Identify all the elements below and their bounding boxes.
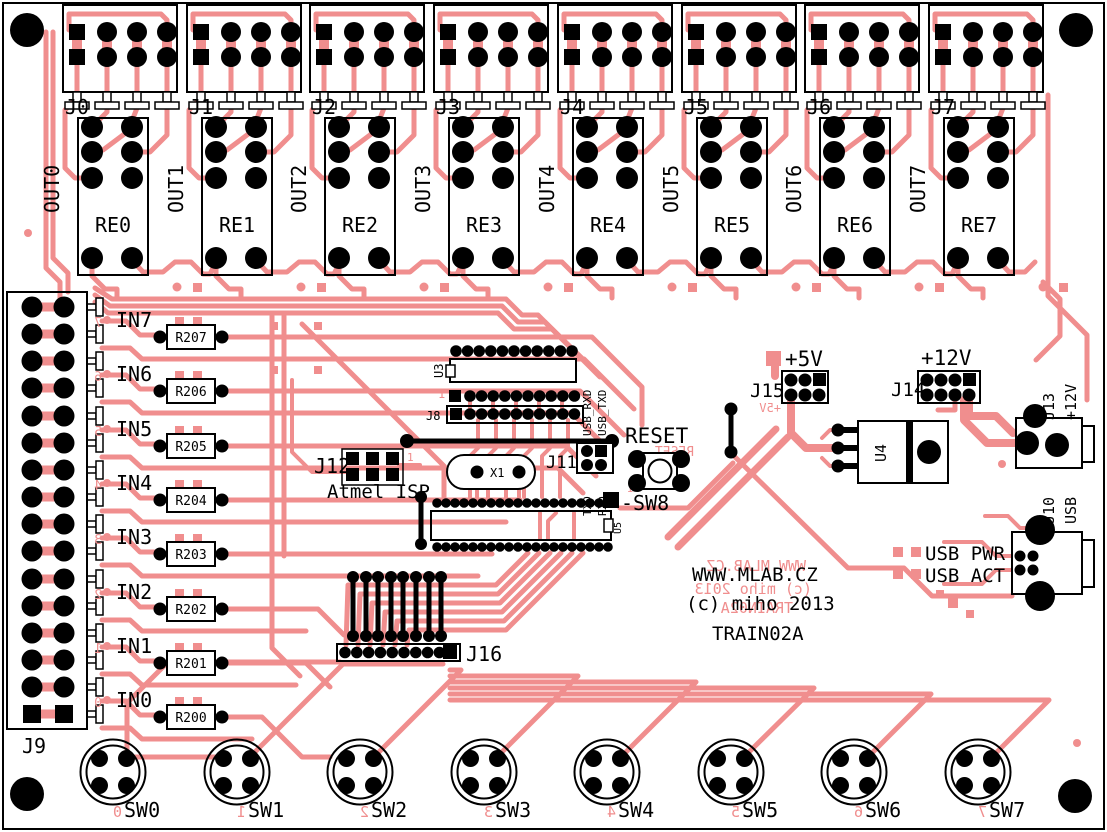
relay-pad	[987, 116, 1009, 138]
relay-label: RE0	[95, 213, 131, 237]
pad	[464, 390, 476, 402]
usb-pwr-led-pad	[893, 547, 903, 557]
plus12v-label: +12V	[921, 346, 972, 370]
pad	[1023, 22, 1043, 42]
copper-digit: 4	[94, 479, 102, 494]
pad	[498, 22, 518, 42]
connector-label: J6	[807, 95, 831, 119]
relay-pad	[121, 247, 143, 269]
pad	[899, 47, 919, 67]
copper-pad	[314, 322, 322, 330]
jumper-end	[385, 571, 397, 583]
relay-pad	[947, 247, 969, 269]
switch-pad	[956, 777, 973, 794]
pad	[477, 498, 487, 508]
pad	[281, 22, 301, 42]
switch-pad	[612, 777, 629, 794]
mounting-hole-top-left	[10, 13, 44, 47]
pad	[495, 498, 505, 508]
relay-label: RE3	[466, 213, 502, 237]
resistor-label: R207	[175, 331, 206, 346]
relay-pad	[576, 167, 598, 189]
pad	[839, 47, 859, 67]
pin-stub	[96, 407, 103, 425]
usb-pwr-label: USB PWR	[925, 543, 1006, 565]
pad	[869, 47, 889, 67]
via	[1039, 283, 1048, 292]
pin1-copper-mark: 1	[438, 387, 445, 401]
pin-stub	[496, 102, 520, 109]
via	[103, 533, 111, 541]
usb-act-label: USB ACT	[925, 565, 1005, 587]
relay-pad	[823, 247, 845, 269]
input-signal-label: IN3	[116, 525, 152, 549]
relay-pad	[368, 167, 390, 189]
jumper-end	[410, 630, 422, 642]
usb-pwr-led-pad	[911, 547, 921, 557]
pad	[54, 569, 75, 590]
mounting-hole-bottom-right	[1058, 779, 1092, 813]
resistor-label: R202	[175, 603, 206, 618]
copper-digit: 2	[94, 588, 102, 603]
switch-pad	[709, 750, 726, 767]
resistor-pad	[216, 385, 229, 398]
switch-pad	[859, 777, 876, 794]
usb-rxd-label: USB_RXD	[581, 390, 594, 436]
mounting-hole-bottom-left	[10, 777, 44, 811]
txd-label: TXD	[581, 496, 594, 516]
pad	[511, 390, 523, 402]
relay-pad	[947, 167, 969, 189]
copper-digit: 6	[854, 803, 863, 821]
pad	[592, 22, 612, 42]
via	[103, 425, 111, 433]
resistor-label: R201	[175, 657, 206, 672]
copper-pad	[270, 366, 278, 374]
switch-pad	[338, 777, 355, 794]
pad	[54, 487, 75, 508]
pad	[585, 542, 595, 552]
pin-stub	[991, 102, 1015, 109]
copper-pad	[314, 366, 322, 374]
via	[668, 283, 677, 292]
switch-pad	[585, 750, 602, 767]
jumper-end	[360, 571, 372, 583]
pad	[545, 408, 557, 420]
usb-txd-label: USB_TXD	[596, 390, 609, 436]
pad	[22, 677, 43, 698]
input-signal-label: IN2	[116, 580, 152, 604]
connector-label: J1	[189, 95, 213, 119]
pin-stub	[96, 624, 103, 642]
relay-pad	[492, 141, 514, 163]
relay-pad	[121, 167, 143, 189]
copper-digit: 7	[94, 316, 102, 331]
pad	[127, 47, 147, 67]
relay-pad	[987, 141, 1009, 163]
resistor-label: R200	[175, 711, 206, 726]
pin1-pad	[935, 24, 951, 40]
copper-pad	[564, 283, 573, 292]
pad	[404, 47, 424, 67]
pad	[522, 498, 532, 508]
relay-pad	[863, 141, 885, 163]
pin-stub	[658, 92, 666, 102]
relay-pad	[616, 247, 638, 269]
pad	[22, 650, 43, 671]
pad	[477, 542, 487, 552]
copper-pad	[948, 598, 958, 608]
relay-label: RE6	[837, 213, 873, 237]
pad	[549, 542, 559, 552]
pin-stub	[875, 92, 883, 102]
pad	[193, 49, 209, 65]
relay-label: RE5	[714, 213, 750, 237]
pin-stub	[87, 657, 96, 663]
pad	[511, 408, 523, 420]
switch-label: SW7	[989, 798, 1025, 822]
connector-label: J4	[560, 95, 584, 119]
pin-stub	[744, 102, 768, 109]
copper-pad	[935, 283, 944, 292]
relay-pad	[823, 141, 845, 163]
pad	[22, 569, 43, 590]
pad	[558, 498, 568, 508]
resistor-label: R203	[175, 548, 206, 563]
pad	[811, 49, 827, 65]
copper-pad	[270, 322, 278, 330]
pad	[22, 297, 43, 318]
jumper-end	[347, 630, 359, 642]
pad	[746, 47, 766, 67]
out-signal-label: OUT1	[164, 165, 188, 213]
crystal-x1-label: X1	[490, 466, 504, 480]
pin-stub	[534, 92, 542, 102]
pad	[459, 498, 469, 508]
pin-stub	[1029, 92, 1037, 102]
copper-digit: 4	[607, 803, 616, 821]
switch-label: SW1	[248, 798, 284, 822]
relay-pad	[492, 167, 514, 189]
pad	[97, 47, 117, 67]
via	[24, 229, 32, 237]
pin-stub	[620, 102, 644, 109]
jumper-end	[415, 538, 427, 550]
pin-stub	[96, 515, 103, 533]
pad	[652, 22, 672, 42]
usb-j10-label: J10	[1040, 497, 1058, 524]
relay-pad	[245, 247, 267, 269]
isp-caption: Atmel ISP	[327, 481, 430, 503]
switch-pad	[462, 750, 479, 767]
pin-stub	[249, 102, 273, 109]
relay-pad	[205, 141, 227, 163]
relay-pad	[823, 167, 845, 189]
connector-label: J2	[312, 95, 336, 119]
power-jack-j13-label: J13	[1040, 393, 1058, 420]
jumper-end	[435, 630, 447, 642]
switch-pad	[983, 777, 1000, 794]
relay-pad	[205, 116, 227, 138]
pad	[499, 408, 511, 420]
header-j8-label: J8	[426, 409, 440, 423]
copper-digit: 0	[113, 803, 122, 821]
pad	[487, 390, 499, 402]
switch-pad	[983, 750, 1000, 767]
switch-pad	[736, 750, 753, 767]
relay-pad	[700, 247, 722, 269]
pad	[157, 22, 177, 42]
pin-stub	[87, 548, 96, 554]
pad	[531, 498, 541, 508]
switch-pad	[338, 750, 355, 767]
relay-label: RE7	[961, 213, 997, 237]
pad	[54, 596, 75, 617]
pad	[594, 542, 604, 552]
pin-stub	[598, 92, 606, 102]
switch-pad	[489, 777, 506, 794]
jumper-end	[372, 571, 384, 583]
relay-pad	[700, 167, 722, 189]
switch-pad	[462, 777, 479, 794]
switch-label: SW0	[124, 798, 160, 822]
pad	[450, 498, 460, 508]
pad	[716, 47, 736, 67]
mcu-u5-label: U5	[613, 522, 624, 534]
pad	[534, 390, 546, 402]
copper-digit: 1	[237, 803, 246, 821]
board-copyright: (c) miho 2013	[686, 593, 835, 615]
relay-pad	[616, 141, 638, 163]
pad	[869, 22, 889, 42]
pad	[54, 623, 75, 644]
pad	[558, 542, 568, 552]
pin-stub	[961, 102, 985, 109]
out-signal-label: OUT3	[411, 165, 435, 213]
pad	[776, 22, 796, 42]
via	[173, 283, 182, 292]
pin-stub	[87, 413, 96, 419]
pad	[386, 647, 398, 659]
plus5v-label: +5V	[785, 347, 823, 371]
via	[420, 283, 429, 292]
pad	[54, 297, 75, 318]
switch-label: SW6	[865, 798, 901, 822]
pin-stub	[163, 92, 171, 102]
pad	[531, 345, 543, 357]
pin-stub	[279, 102, 303, 109]
pad	[528, 22, 548, 42]
jumper-end	[410, 571, 422, 583]
pad	[540, 542, 550, 552]
pad	[935, 49, 951, 65]
pad	[534, 408, 546, 420]
pad	[22, 324, 43, 345]
pad	[22, 406, 43, 427]
copper-digit: 2	[360, 803, 369, 821]
pin-stub	[96, 352, 103, 370]
switch-pad	[91, 750, 108, 767]
pad	[410, 647, 422, 659]
pin-stub	[380, 92, 388, 102]
pin1-pad	[69, 24, 85, 40]
relay-pad	[823, 116, 845, 138]
relay-pad	[740, 141, 762, 163]
connector-label: J7	[931, 95, 955, 119]
relay-pad	[81, 247, 103, 269]
resistor-label: R205	[175, 440, 206, 455]
pin-stub	[714, 102, 738, 109]
relay-pad	[328, 167, 350, 189]
pad	[993, 47, 1013, 67]
relay-pad	[987, 167, 1009, 189]
pad	[486, 498, 496, 508]
pin-stub	[650, 102, 674, 109]
pad	[569, 408, 581, 420]
pin1-pad	[450, 408, 462, 420]
pad	[22, 460, 43, 481]
pad	[716, 22, 736, 42]
switch-pad	[612, 750, 629, 767]
relay-pad	[245, 167, 267, 189]
relay-pad	[368, 247, 390, 269]
pad	[422, 647, 434, 659]
switch-pad	[859, 750, 876, 767]
jumper-end	[435, 571, 447, 583]
pcb-canvas: 1 1 1 RESET +5V WWW.MLAB.CZ (c) miho 201…	[0, 0, 1107, 832]
pad	[688, 49, 704, 65]
relay-pad	[81, 141, 103, 163]
plus5v-copper-pad	[766, 351, 781, 366]
pad	[564, 49, 580, 65]
resistor-pad	[154, 548, 167, 561]
pin1-pad	[564, 24, 580, 40]
pad	[557, 390, 569, 402]
pin-stub	[969, 92, 977, 102]
input-signal-label: IN0	[116, 688, 152, 712]
pad	[22, 596, 43, 617]
pad	[504, 542, 514, 552]
pad	[450, 345, 462, 357]
switch-label: SW4	[618, 798, 654, 822]
pin-stub	[96, 678, 103, 696]
relay-pad	[987, 247, 1009, 269]
pin-stub	[96, 461, 103, 479]
pad	[622, 22, 642, 42]
pad	[899, 22, 919, 42]
out-signal-label: OUT7	[906, 165, 930, 213]
pad	[97, 22, 117, 42]
pin-stub	[466, 102, 490, 109]
pad	[22, 433, 43, 454]
pin-stub	[342, 102, 366, 109]
pin-stub	[590, 102, 614, 109]
pad	[839, 22, 859, 42]
pin1-pad	[688, 24, 704, 40]
relay-pad	[245, 116, 267, 138]
relay-pad	[81, 116, 103, 138]
switch-pad	[215, 777, 232, 794]
pad	[513, 542, 523, 552]
jumper-end	[423, 571, 435, 583]
pin1-pad	[193, 24, 209, 40]
reset-button-cap	[649, 460, 672, 483]
header-j14-label: J14	[891, 379, 925, 401]
input-connector-label: J9	[22, 734, 46, 758]
copper-pad	[317, 283, 326, 292]
input-signal-label: IN5	[116, 417, 152, 441]
relay-pad	[740, 116, 762, 138]
relay-pad	[368, 141, 390, 163]
pin-stub	[87, 440, 96, 446]
pad	[540, 498, 550, 508]
via	[103, 316, 111, 324]
pin-stub	[87, 711, 96, 717]
input-signal-label: IN6	[116, 362, 152, 386]
ic-u3-outline	[450, 359, 576, 382]
pad	[127, 22, 147, 42]
pad	[569, 390, 581, 402]
pad	[344, 22, 364, 42]
pad	[476, 390, 488, 402]
jumper-end	[725, 403, 738, 416]
pad	[22, 378, 43, 399]
header-j11-label: J11	[546, 453, 577, 473]
jumper-end	[423, 630, 435, 642]
relay-pad	[328, 116, 350, 138]
resistor-pad	[154, 603, 167, 616]
switch-pad	[736, 777, 753, 794]
switch-pad	[956, 750, 973, 767]
pin-stub	[905, 92, 913, 102]
copper-digit: 1	[94, 642, 102, 657]
pin-stub	[752, 92, 760, 102]
pad	[508, 345, 520, 357]
pad	[374, 47, 394, 67]
isp-j12-label: J12	[314, 454, 350, 478]
pad	[468, 47, 488, 67]
relay-pad	[452, 116, 474, 138]
pad	[441, 498, 451, 508]
pad	[54, 541, 75, 562]
pad	[504, 498, 514, 508]
pad	[22, 487, 43, 508]
relay-pad	[616, 116, 638, 138]
switch-pad	[91, 777, 108, 794]
pad	[54, 650, 75, 671]
out-signal-label: OUT5	[659, 165, 683, 213]
pin-stub	[96, 298, 103, 316]
pad	[963, 47, 983, 67]
resistor-pad	[154, 494, 167, 507]
pin-stub	[103, 92, 111, 102]
via	[544, 283, 553, 292]
pad	[22, 623, 43, 644]
switch-pad	[242, 750, 259, 767]
switch-pad	[118, 750, 135, 767]
pin-stub	[87, 358, 96, 364]
pad	[54, 351, 75, 372]
pad	[993, 22, 1013, 42]
pad	[464, 408, 476, 420]
relay-pad	[452, 247, 474, 269]
switch-pad	[709, 777, 726, 794]
pcb-layout-screenshot: 1 1 1 RESET +5V WWW.MLAB.CZ (c) miho 201…	[0, 0, 1107, 832]
pin-stub	[774, 102, 798, 109]
pad	[963, 22, 983, 42]
relay-pad	[700, 116, 722, 138]
via	[792, 283, 801, 292]
